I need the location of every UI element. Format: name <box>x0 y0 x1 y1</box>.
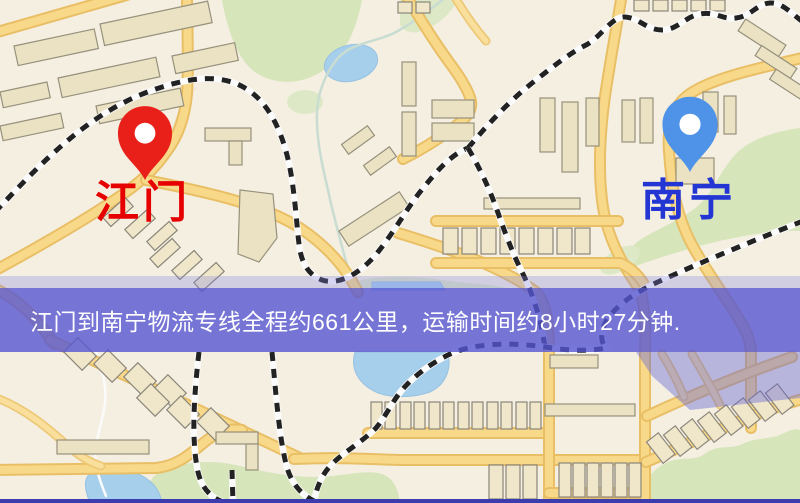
route-info-text: 江门到南宁物流专线全程约661公里，运输时间约8小时27分钟. <box>30 303 681 337</box>
banner-feather-top <box>0 276 800 288</box>
bottom-edge-strip <box>0 499 800 503</box>
map-canvas <box>0 0 800 503</box>
map-screenshot: 江门 南宁 江门到南宁物流专线全程约661公里，运输时间约8小时27分钟. <box>0 0 800 503</box>
nanning-label: 南宁 <box>641 179 737 223</box>
route-info-banner: 江门到南宁物流专线全程约661公里，运输时间约8小时27分钟. <box>0 288 800 352</box>
jiangmen-label: 江门 <box>95 181 191 225</box>
